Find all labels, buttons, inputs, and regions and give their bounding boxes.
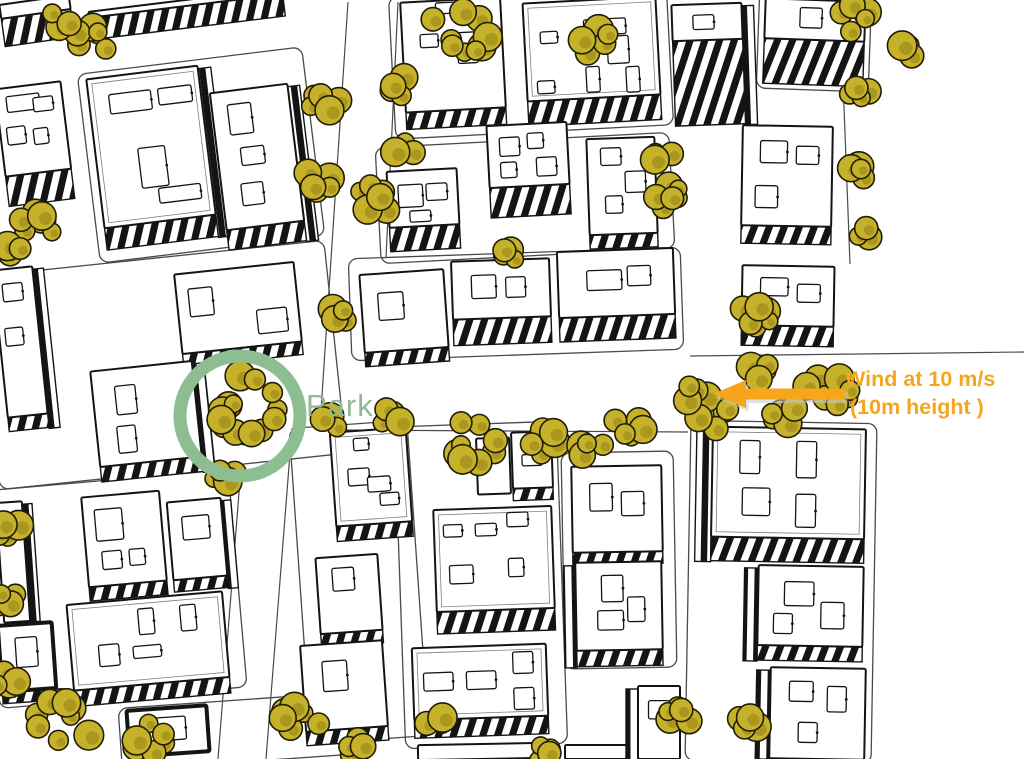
building: [0, 81, 75, 206]
rooftop-unit: [742, 488, 770, 516]
rooftop-unit: [378, 292, 405, 321]
rooftop-unit: [600, 148, 621, 166]
rooftop-unit: [129, 548, 146, 565]
rooftop-unit: [527, 132, 544, 148]
building-roof: [769, 667, 866, 759]
tree-shade: [485, 33, 498, 46]
building-roof: [571, 465, 662, 553]
rooftop-unit: [98, 644, 120, 667]
tree-shade: [585, 441, 593, 449]
building: [418, 743, 543, 759]
rooftop-unit: [798, 722, 817, 742]
rooftop-unit: [536, 157, 557, 177]
rooftop-unit: [15, 636, 39, 667]
tree-shade: [493, 437, 504, 448]
rooftop-unit: [827, 686, 846, 712]
rooftop-unit: [800, 7, 823, 28]
rooftop-unit: [586, 66, 601, 92]
building: [695, 426, 866, 564]
rooftop-unit: [133, 644, 162, 658]
rooftop-unit: [426, 183, 448, 201]
rooftop-unit: [410, 210, 432, 222]
wind-height-label: (10m height ): [850, 395, 984, 419]
rooftop-unit: [796, 146, 819, 164]
rooftop-unit: [179, 604, 197, 631]
rooftop-unit: [797, 284, 820, 302]
tree-cluster: [302, 84, 352, 125]
tree-shade: [652, 156, 665, 169]
building: [557, 248, 676, 342]
building-facade-left: [743, 568, 759, 661]
rooftop-unit: [821, 602, 845, 629]
rooftop-unit: [621, 491, 644, 515]
building-roof: [315, 554, 382, 634]
building-roof: [741, 125, 833, 227]
rooftop-unit: [627, 597, 645, 622]
rooftop-unit: [507, 512, 529, 527]
rooftop-unit: [505, 277, 525, 298]
tree-cluster: [567, 431, 613, 468]
tree-cluster: [849, 217, 881, 250]
tree-cluster: [640, 142, 683, 174]
tree-shade: [477, 422, 486, 431]
rooftop-unit: [241, 181, 265, 206]
rooftop-unit: [348, 468, 370, 486]
tree-shade: [36, 723, 46, 733]
tree-shade: [756, 375, 768, 387]
rooftop-unit: [117, 425, 138, 454]
building-roof: [565, 745, 635, 759]
rooftop-unit: [182, 515, 211, 541]
tree-shade: [767, 319, 775, 327]
tree-cluster: [373, 398, 414, 436]
urban-wind-map-figure: Wind at 10 m/s (10m height ) Park: [0, 0, 1024, 759]
building-facade-front: [390, 224, 461, 252]
rooftop-unit: [471, 275, 496, 299]
building: [563, 561, 663, 668]
tree-shade: [770, 411, 779, 420]
rooftop-unit: [449, 565, 473, 584]
tree-shade: [696, 414, 708, 426]
tree-shade: [849, 29, 858, 38]
building-facade-front: [741, 225, 831, 245]
building: [565, 745, 635, 759]
tree-shade: [341, 308, 350, 317]
building: [671, 2, 757, 127]
wind-speed-label: Wind at 10 m/s: [845, 367, 995, 391]
building: [0, 265, 60, 432]
tree-shade: [14, 678, 26, 690]
tree-shade: [50, 11, 58, 19]
rooftop-unit: [33, 127, 49, 144]
rooftop-unit: [760, 141, 787, 163]
rooftop-unit: [499, 137, 520, 157]
tree-shade: [748, 320, 758, 330]
tree-shade: [218, 416, 231, 429]
tree-shade: [601, 442, 610, 451]
tree-shade: [792, 405, 804, 417]
rooftop-unit: [353, 438, 369, 451]
rooftop-unit: [33, 96, 54, 112]
rooftop-unit: [514, 687, 535, 709]
building: [88, 0, 285, 40]
rooftop-unit: [2, 282, 24, 302]
rooftop-unit: [601, 575, 623, 602]
rooftop-unit: [367, 476, 391, 493]
rooftop-unit: [114, 384, 137, 415]
tree-shade: [232, 402, 240, 410]
building-facade-front: [577, 649, 663, 666]
tree-shade: [316, 721, 326, 731]
building: [86, 64, 231, 251]
rooftop-unit: [789, 681, 813, 701]
tree-cluster: [887, 31, 923, 68]
tree-shade: [392, 148, 405, 161]
tree-cluster: [838, 152, 875, 189]
rooftop-unit: [157, 85, 192, 105]
tree-shade: [551, 429, 563, 441]
rooftop-unit: [773, 613, 792, 633]
rooftop-unit: [784, 582, 814, 607]
building-facade-left: [695, 429, 713, 561]
tree-shade: [64, 699, 77, 712]
rooftop-unit: [605, 196, 623, 214]
tree-shade: [161, 731, 171, 741]
rooftop-unit: [108, 90, 152, 114]
building: [433, 506, 555, 634]
rooftop-unit: [755, 185, 778, 207]
rooftop-unit: [6, 126, 26, 146]
tree-shade: [411, 149, 422, 160]
tree-shade: [640, 426, 653, 439]
tree-shade: [104, 46, 113, 55]
building: [486, 122, 571, 218]
rooftop-unit: [626, 66, 641, 92]
rooftop-unit: [625, 171, 646, 193]
rooftop-unit: [796, 441, 817, 478]
street-curb-line: [320, 2, 348, 426]
building-roof: [81, 491, 167, 587]
tree-shade: [714, 425, 725, 436]
building: [330, 427, 413, 541]
building-facade-front: [453, 316, 552, 345]
building-facade-left: [626, 689, 638, 759]
tree-shade: [579, 36, 591, 48]
park-label: Park: [306, 388, 374, 423]
buildings-layer: [0, 0, 866, 759]
tree-shade: [249, 430, 261, 442]
building: [315, 554, 383, 647]
tree-shade: [134, 737, 147, 750]
rooftop-unit: [540, 31, 558, 44]
tree-shade: [39, 212, 52, 225]
tree-shade: [377, 193, 389, 205]
tree-shade: [391, 83, 402, 94]
building: [167, 497, 239, 593]
tree-shade: [8, 600, 20, 612]
tree-shade: [859, 166, 868, 175]
rooftop-unit: [380, 492, 400, 506]
tree-shade: [513, 257, 521, 265]
building: [741, 125, 833, 245]
tree-shade: [272, 416, 282, 426]
tree-shade: [459, 420, 469, 430]
tree-shade: [725, 406, 735, 416]
tree-shade: [685, 397, 698, 410]
tree-shade: [56, 738, 65, 747]
tree-shade: [1, 521, 13, 533]
building-roof: [451, 258, 551, 319]
tree-shade: [450, 43, 460, 53]
rooftop-unit: [508, 558, 524, 577]
building: [451, 258, 552, 345]
rooftop-unit: [5, 327, 25, 347]
rooftop-unit: [598, 610, 624, 630]
tree-shade: [397, 418, 410, 431]
tree-shade: [623, 431, 632, 440]
tree-shade: [328, 185, 337, 194]
tree-shade: [606, 32, 615, 41]
tree-shade: [335, 424, 344, 433]
tree-shade: [670, 195, 680, 205]
tree-shade: [502, 247, 512, 257]
tree-shade: [280, 714, 292, 726]
rooftop-unit: [740, 440, 760, 473]
tree-shade: [864, 16, 872, 24]
tree-shade: [440, 714, 453, 727]
tree-shade: [50, 230, 58, 238]
tree-shade: [669, 151, 679, 161]
tree-shade: [431, 16, 442, 27]
rooftop-unit: [240, 145, 265, 166]
building-roof: [711, 427, 866, 540]
rooftop-unit: [587, 270, 622, 291]
rooftop-unit: [138, 145, 170, 188]
rooftop-unit: [423, 672, 453, 691]
rooftop-unit: [693, 15, 714, 30]
building: [571, 465, 663, 565]
rooftop-unit: [627, 265, 651, 286]
tree-shade: [361, 743, 372, 754]
street-curb-line: [690, 352, 1024, 356]
building: [81, 491, 168, 601]
rooftop-unit: [590, 483, 613, 511]
tree-shade: [327, 106, 340, 119]
rooftop-unit: [322, 660, 349, 692]
tree-shade: [460, 455, 473, 468]
tree-shade: [529, 441, 539, 451]
tree-shade: [756, 303, 769, 316]
rooftop-unit: [537, 80, 555, 94]
rooftop-unit: [443, 524, 462, 537]
rooftop-unit: [466, 671, 496, 690]
rooftop-unit: [332, 567, 355, 591]
tree-shade: [311, 184, 322, 195]
rooftop-unit: [475, 523, 497, 536]
tree-shade: [687, 384, 696, 393]
rooftop-unit: [102, 550, 123, 570]
tree-shade: [18, 246, 28, 256]
tree-shade: [899, 42, 912, 55]
tree-shade: [67, 20, 78, 31]
building: [67, 591, 231, 706]
rooftop-unit: [137, 608, 155, 635]
rooftop-unit: [420, 34, 439, 48]
rooftop-unit: [500, 162, 517, 178]
building-facade-front: [490, 184, 571, 218]
tree-shade: [679, 707, 689, 717]
rooftop-unit: [795, 494, 815, 527]
building-roof: [433, 506, 554, 612]
tree-shade: [460, 9, 472, 21]
rooftop-unit: [256, 307, 288, 334]
tree-shade: [747, 714, 759, 726]
tree-cluster: [493, 237, 523, 268]
building-roof: [418, 743, 543, 759]
tree-shade: [253, 377, 262, 386]
rooftop-unit: [398, 184, 424, 208]
building-facade-front: [673, 39, 746, 126]
building-roof: [67, 591, 230, 690]
tree-shade: [474, 48, 483, 57]
building: [755, 667, 866, 759]
tree-shade: [854, 85, 864, 95]
tree-shade: [835, 402, 845, 412]
tree-shade: [86, 731, 99, 744]
building-facade-front: [711, 537, 864, 564]
rooftop-unit: [512, 651, 533, 673]
building: [743, 565, 864, 663]
rooftop-unit: [188, 287, 215, 317]
building: [359, 269, 449, 367]
city-map-illustration: Wind at 10 m/s (10m height ) Park: [0, 0, 1024, 759]
tree-shade: [864, 225, 874, 235]
tree-cluster: [529, 737, 561, 759]
building-roof: [486, 122, 569, 188]
rooftop-unit: [227, 102, 254, 135]
rooftop-unit: [94, 508, 124, 542]
tree-shade: [96, 30, 104, 38]
tree-shade: [270, 390, 279, 399]
